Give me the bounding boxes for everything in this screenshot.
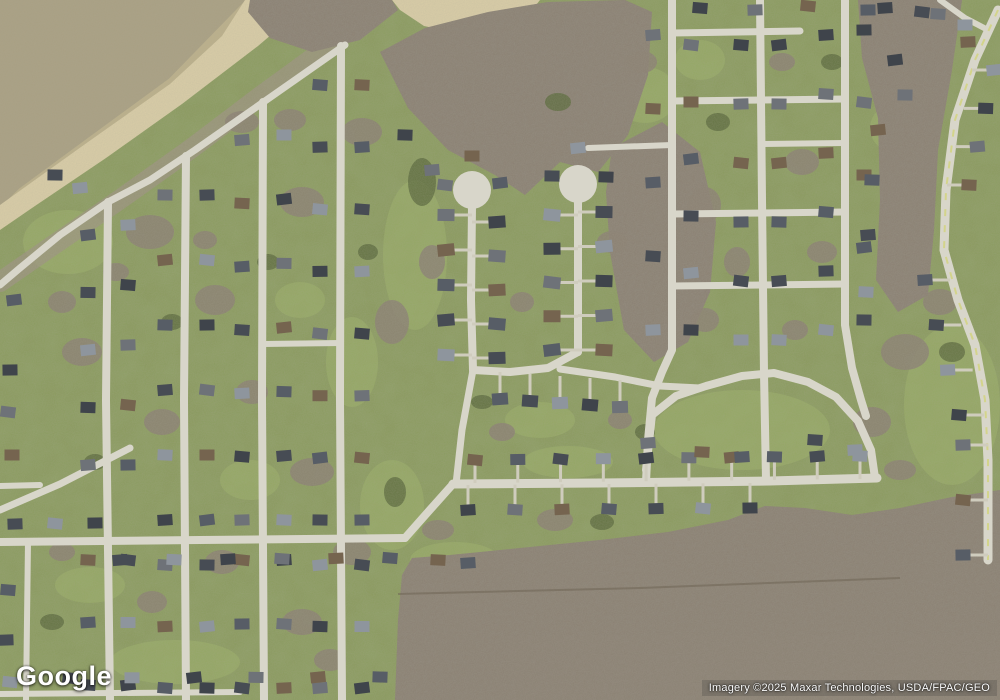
- imagery-attribution: Imagery ©2025 Maxar Technologies, USDA/F…: [702, 680, 997, 696]
- google-logo[interactable]: Google: [16, 661, 112, 692]
- satellite-imagery: [0, 0, 1000, 700]
- map-viewport[interactable]: Google Imagery ©2025 Maxar Technologies,…: [0, 0, 1000, 700]
